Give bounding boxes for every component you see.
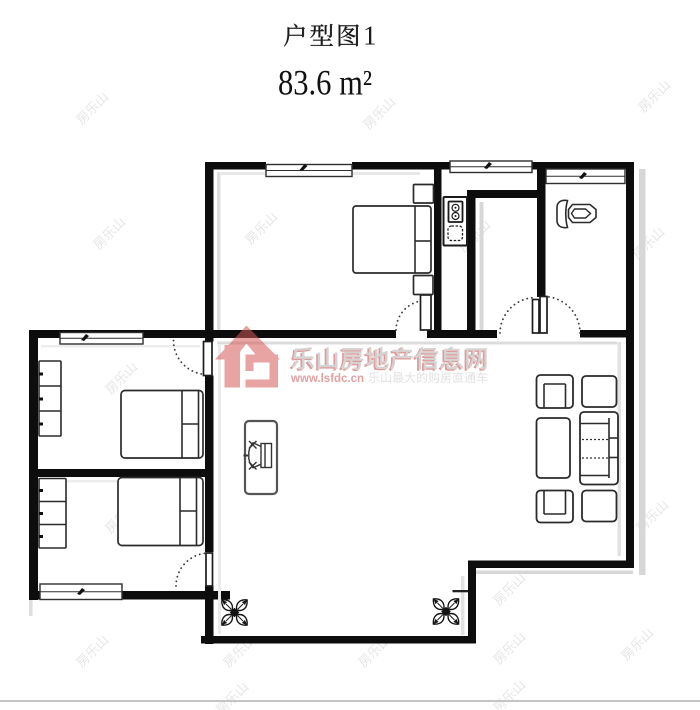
- svg-text:www.lsfdc.cn: www.lsfdc.cn: [290, 373, 364, 385]
- svg-text:1: 1: [363, 21, 377, 51]
- svg-text:83.6 m²: 83.6 m²: [278, 63, 372, 103]
